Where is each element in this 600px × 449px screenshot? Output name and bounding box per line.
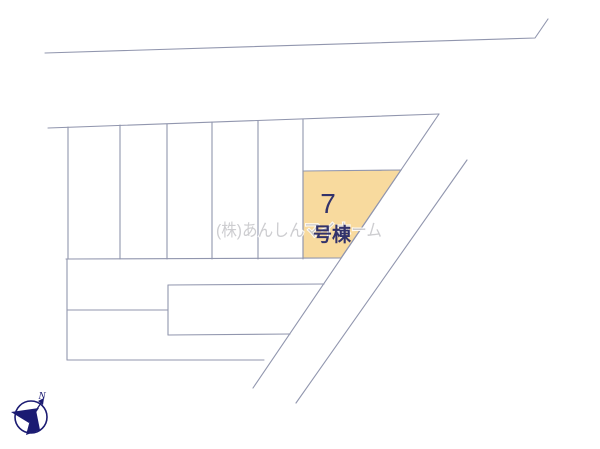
block-middle-boundary-line [66, 258, 341, 259]
site-plan-drawing: (株)あんしんマイホーム 7 号棟 N [0, 0, 600, 449]
compass-icon: N [11, 390, 47, 435]
road-edge-line [45, 19, 548, 53]
inner-lot-bottom-edge-line [168, 334, 290, 335]
inner-lot-top-edge-line [168, 284, 324, 285]
lot-suffix-label: 号棟 [313, 223, 352, 246]
watermark-text: (株)あんしんマイホーム [216, 221, 382, 240]
lot-number-label: 7 [320, 188, 336, 219]
site-plan-canvas: (株)あんしんマイホーム 7 号棟 N [0, 0, 600, 449]
compass-north-label: N [37, 390, 46, 402]
diagonal-road-left-edge-line [253, 114, 439, 388]
block-top-boundary-line [48, 114, 439, 128]
